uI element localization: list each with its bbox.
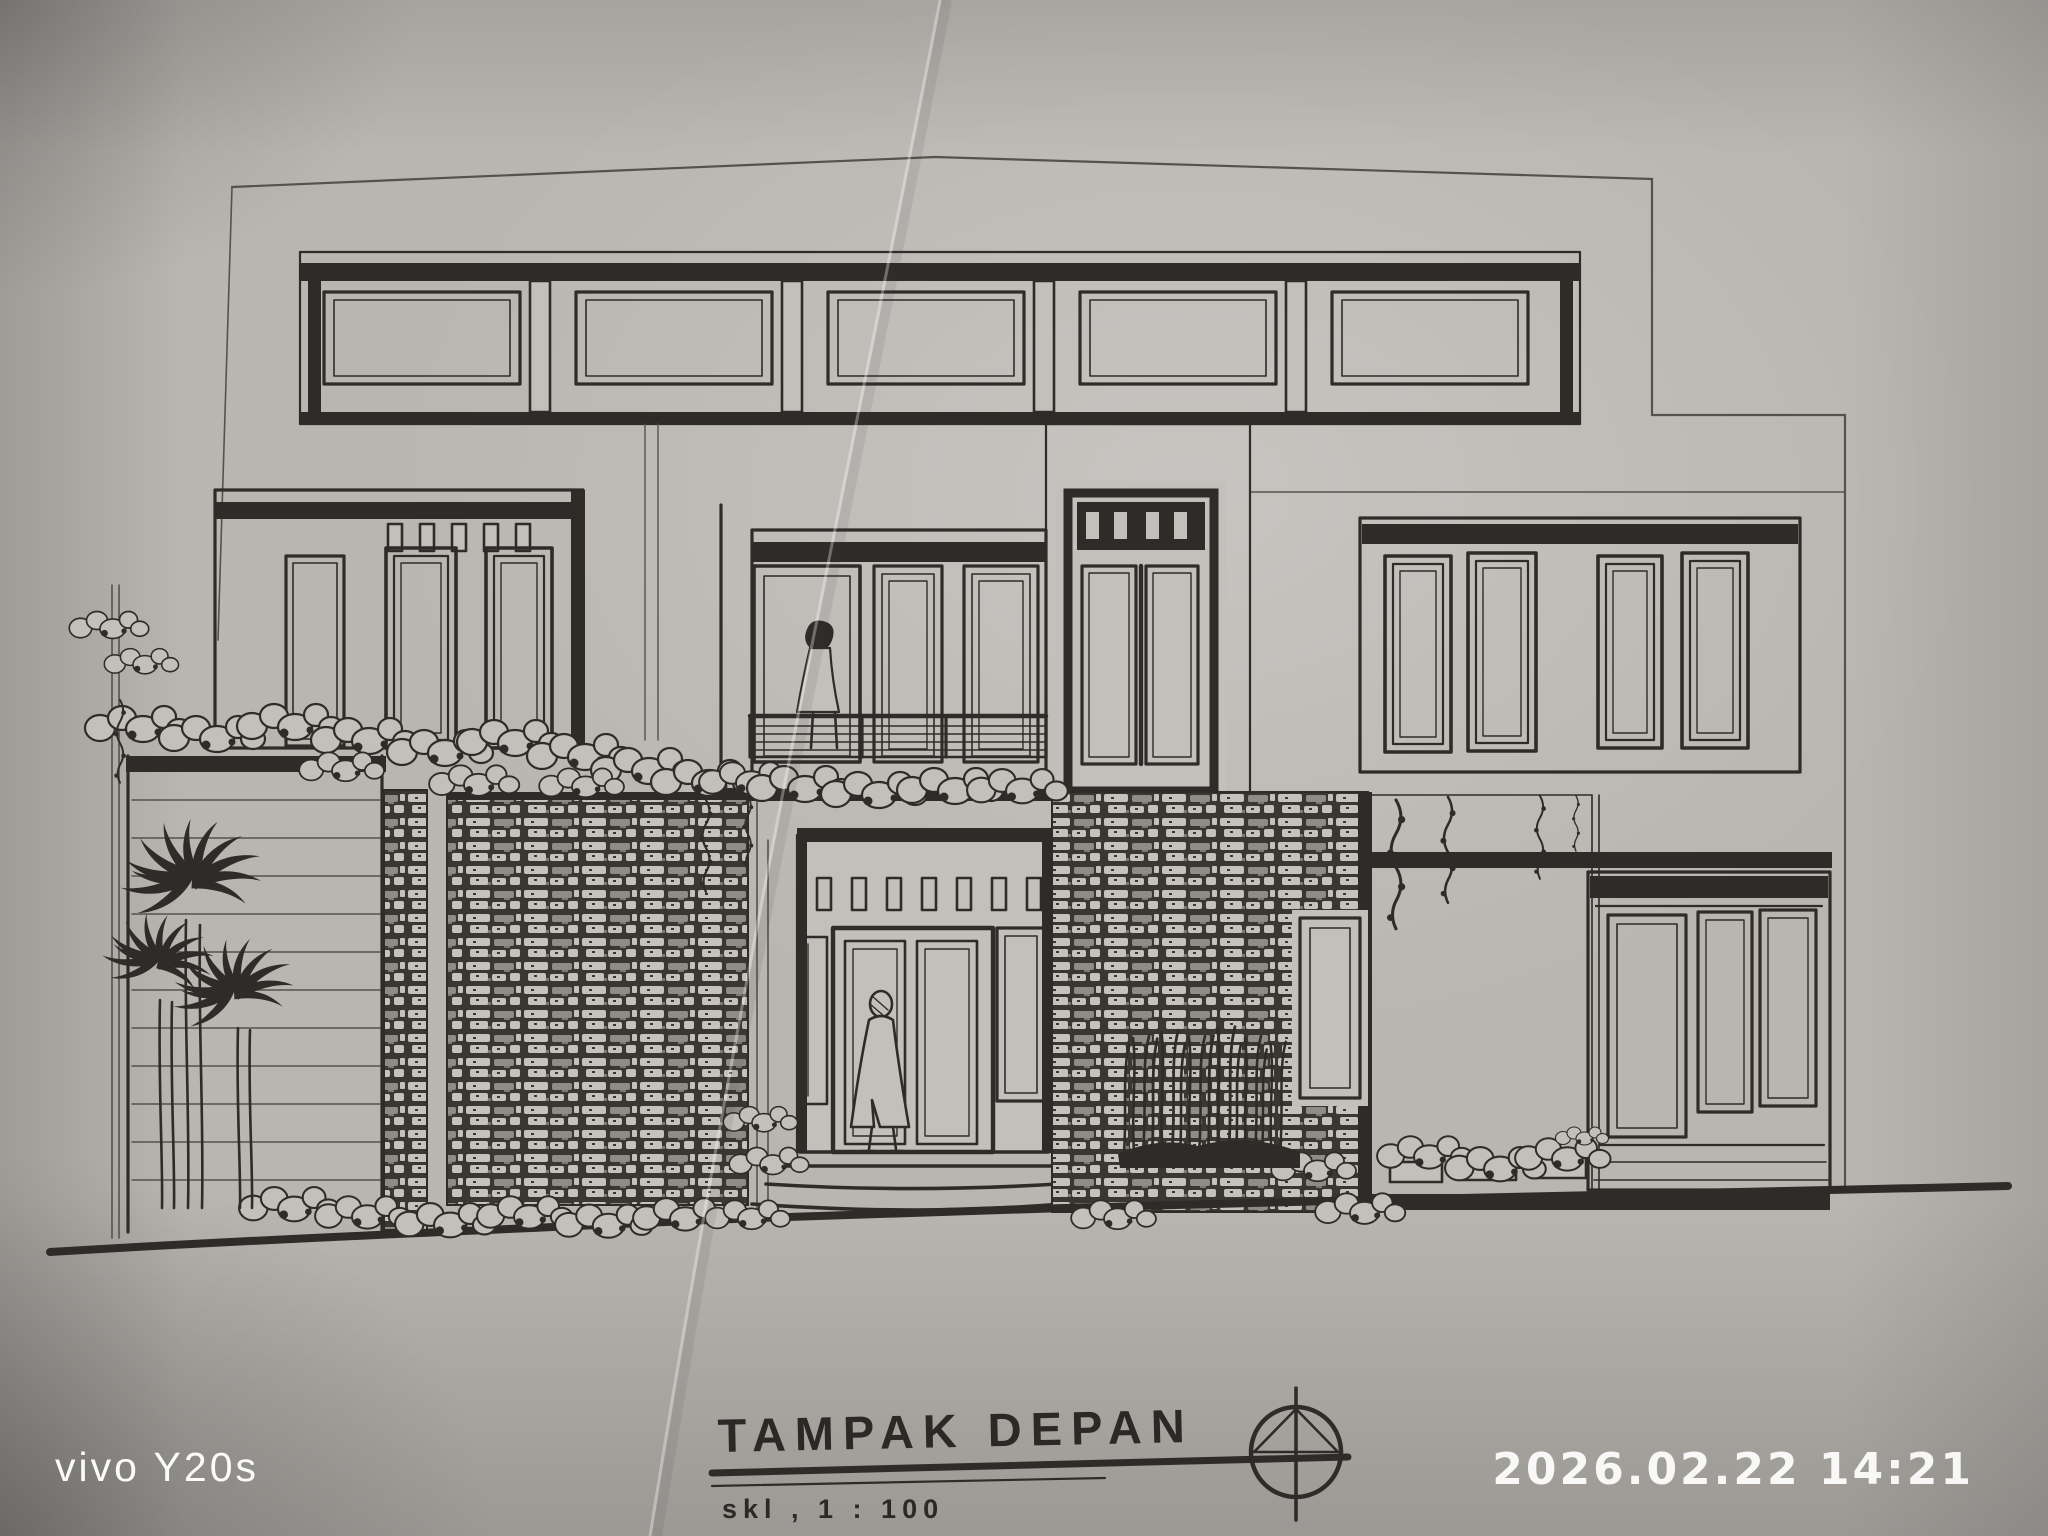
device-watermark: vivo Y20s xyxy=(55,1444,259,1491)
stone-wall-left xyxy=(384,790,768,1230)
clerestory-band xyxy=(300,252,1580,424)
left-upper-panel xyxy=(215,424,658,748)
clerestory-window xyxy=(324,292,1528,384)
stone-tower xyxy=(1046,424,1250,807)
compass-circle-triangle-icon xyxy=(1251,1388,1341,1520)
timestamp-watermark: 2026.02.22 14:21 xyxy=(1492,1444,1974,1495)
title-block: TAMPAK DEPAN skl , 1 : 100 xyxy=(712,1388,1348,1524)
right-ground-window xyxy=(1588,872,1830,1190)
drawing-title: TAMPAK DEPAN xyxy=(717,1399,1194,1462)
drawing-scale: skl , 1 : 100 xyxy=(722,1494,944,1524)
right-upper-panel xyxy=(1360,518,1832,868)
balcony-section xyxy=(721,505,1051,801)
entrance-porch xyxy=(752,828,1062,1210)
elevation-drawing: TAMPAK DEPAN skl , 1 : 100 xyxy=(0,0,2048,1536)
photo-of-elevation-drawing: TAMPAK DEPAN skl , 1 : 100 vivo Y20s 202… xyxy=(0,0,2048,1536)
